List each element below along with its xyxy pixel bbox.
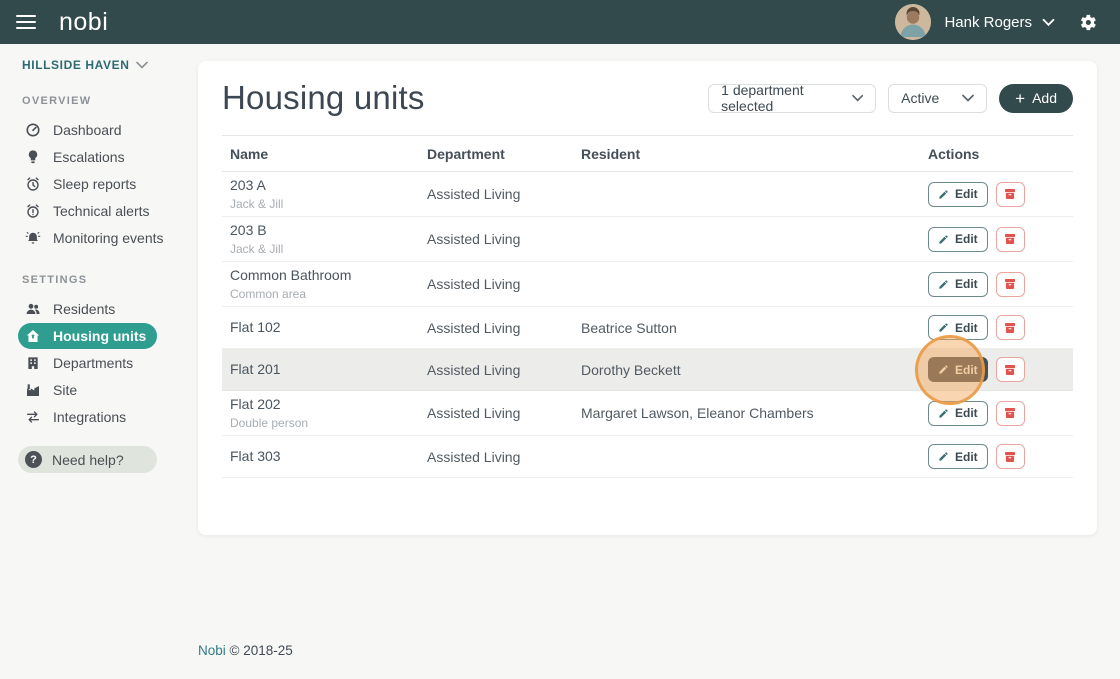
edit-button[interactable]: Edit	[928, 315, 988, 340]
people-icon	[25, 301, 41, 317]
edit-button[interactable]: Edit	[928, 182, 988, 207]
user-name[interactable]: Hank Rogers	[944, 14, 1032, 31]
sidebar-item-departments[interactable]: Departments	[18, 350, 157, 376]
page-title: Housing units	[222, 79, 425, 117]
swap-arrows-icon	[25, 409, 41, 425]
archive-box-icon	[1003, 363, 1017, 377]
archive-box-icon	[1003, 232, 1017, 246]
column-header-name: Name	[230, 146, 427, 162]
unit-name: Flat 202	[230, 396, 427, 413]
unit-name: Flat 102	[230, 319, 427, 336]
unit-subtitle: Common area	[230, 287, 427, 301]
archive-box-icon	[1003, 406, 1017, 420]
table-row: Flat 303 Assisted Living Edit	[222, 436, 1073, 478]
status-filter-dropdown[interactable]: Active	[888, 84, 987, 113]
pencil-icon	[938, 364, 949, 375]
sidebar-item-housing-units[interactable]: Housing units	[18, 323, 157, 349]
column-header-actions: Actions	[928, 146, 1073, 162]
pencil-icon	[938, 189, 949, 200]
unit-department: Assisted Living	[427, 231, 581, 247]
table-header-row: Name Department Resident Actions	[222, 135, 1073, 172]
sidebar-item-site[interactable]: Site	[18, 377, 157, 403]
footer: Nobi © 2018-25	[198, 643, 293, 658]
factory-icon	[25, 382, 41, 398]
alarm-alert-icon	[25, 203, 41, 219]
gear-icon[interactable]	[1077, 12, 1098, 33]
edit-button[interactable]: Edit	[928, 444, 988, 469]
facility-selector[interactable]: HILLSIDE HAVEN	[0, 58, 198, 72]
unit-name: Flat 303	[230, 448, 427, 465]
edit-button[interactable]: Edit	[928, 227, 988, 252]
table-row: 203 B Jack & Jill Assisted Living Edit	[222, 217, 1073, 262]
unit-department: Assisted Living	[427, 449, 581, 465]
sidebar-item-monitoring-events[interactable]: Monitoring events	[18, 225, 157, 251]
chevron-down-icon[interactable]	[1042, 18, 1055, 27]
edit-button[interactable]: Edit	[928, 357, 988, 382]
top-bar: nobi Hank Rogers	[0, 0, 1120, 44]
facility-name: HILLSIDE HAVEN	[22, 58, 130, 72]
delete-button[interactable]	[996, 182, 1025, 207]
archive-box-icon	[1003, 450, 1017, 464]
chevron-down-icon	[962, 94, 974, 102]
need-help-button[interactable]: ? Need help?	[18, 446, 157, 473]
sidebar-item-dashboard[interactable]: Dashboard	[18, 117, 157, 143]
add-button[interactable]: + Add	[999, 84, 1073, 113]
gauge-icon	[25, 122, 41, 138]
edit-button[interactable]: Edit	[928, 401, 988, 426]
housing-units-card: Housing units 1 department selected Acti…	[198, 61, 1097, 535]
app-logo: nobi	[59, 8, 108, 37]
plus-icon: +	[1015, 90, 1025, 107]
unit-subtitle: Jack & Jill	[230, 242, 427, 256]
pencil-icon	[938, 234, 949, 245]
edit-button[interactable]: Edit	[928, 272, 988, 297]
footer-copyright: © 2018-25	[230, 643, 293, 658]
unit-name: Flat 201	[230, 361, 427, 378]
delete-button[interactable]	[996, 357, 1025, 382]
lightbulb-icon	[25, 149, 41, 165]
bell-icon	[25, 230, 41, 246]
table-row: 203 A Jack & Jill Assisted Living Edit	[222, 172, 1073, 217]
unit-department: Assisted Living	[427, 362, 581, 378]
sidebar-item-escalations[interactable]: Escalations	[18, 144, 157, 170]
unit-department: Assisted Living	[427, 320, 581, 336]
pencil-icon	[938, 451, 949, 462]
unit-resident: Dorothy Beckett	[581, 362, 928, 378]
table-row: Flat 102 Assisted Living Beatrice Sutton…	[222, 307, 1073, 349]
avatar-photo	[895, 4, 931, 40]
housing-units-table: Name Department Resident Actions 203 A J…	[222, 135, 1073, 478]
unit-subtitle: Jack & Jill	[230, 197, 427, 211]
archive-box-icon	[1003, 187, 1017, 201]
sidebar-item-residents[interactable]: Residents	[18, 296, 157, 322]
question-mark-icon: ?	[25, 451, 42, 468]
unit-name: 203 A	[230, 177, 427, 194]
delete-button[interactable]	[996, 227, 1025, 252]
unit-subtitle: Double person	[230, 416, 427, 430]
house-icon	[25, 328, 41, 344]
sidebar-item-sleep-reports[interactable]: Sleep reports	[18, 171, 157, 197]
user-avatar[interactable]	[895, 4, 931, 40]
table-row: Common Bathroom Common area Assisted Liv…	[222, 262, 1073, 307]
sidebar-item-technical-alerts[interactable]: Technical alerts	[18, 198, 157, 224]
delete-button[interactable]	[996, 401, 1025, 426]
section-label-settings: SETTINGS	[0, 274, 198, 286]
pencil-icon	[938, 408, 949, 419]
building-icon	[25, 355, 41, 371]
delete-button[interactable]	[996, 272, 1025, 297]
table-row: Flat 202 Double person Assisted Living M…	[222, 391, 1073, 436]
pencil-icon	[938, 279, 949, 290]
unit-name: Common Bathroom	[230, 267, 427, 284]
delete-button[interactable]	[996, 315, 1025, 340]
unit-department: Assisted Living	[427, 405, 581, 421]
column-header-resident: Resident	[581, 146, 928, 162]
unit-resident: Beatrice Sutton	[581, 320, 928, 336]
alarm-clock-icon	[25, 176, 41, 192]
chevron-down-icon	[136, 61, 148, 69]
pencil-icon	[938, 322, 949, 333]
footer-brand-link[interactable]: Nobi	[198, 643, 226, 658]
unit-department: Assisted Living	[427, 186, 581, 202]
department-filter-dropdown[interactable]: 1 department selected	[708, 84, 876, 113]
table-row: Flat 201 Assisted Living Dorothy Beckett…	[222, 349, 1073, 391]
chevron-down-icon	[852, 94, 863, 102]
column-header-department: Department	[427, 146, 581, 162]
sidebar-item-integrations[interactable]: Integrations	[18, 404, 157, 430]
menu-icon[interactable]	[16, 15, 36, 29]
archive-box-icon	[1003, 321, 1017, 335]
unit-resident: Margaret Lawson, Eleanor Chambers	[581, 405, 928, 421]
unit-name: 203 B	[230, 222, 427, 239]
delete-button[interactable]	[996, 444, 1025, 469]
unit-department: Assisted Living	[427, 276, 581, 292]
sidebar: HILLSIDE HAVEN OVERVIEW Dashboard Escala…	[0, 44, 198, 679]
archive-box-icon	[1003, 277, 1017, 291]
section-label-overview: OVERVIEW	[0, 95, 198, 107]
